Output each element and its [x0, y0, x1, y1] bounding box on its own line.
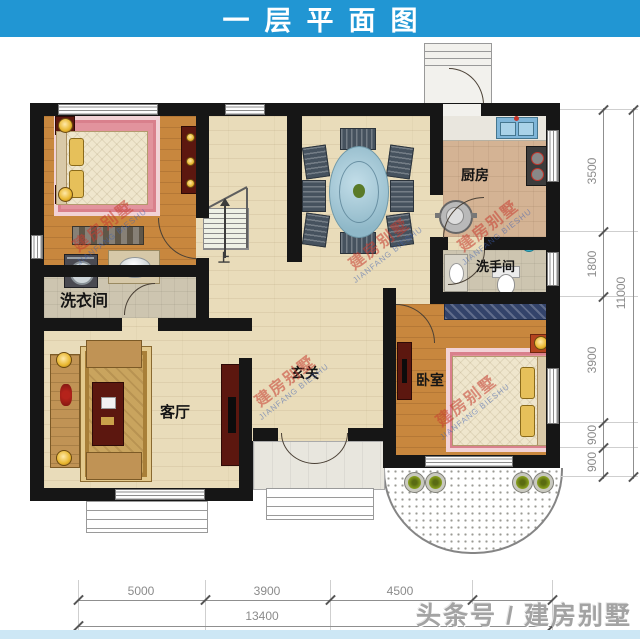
wall-laundry-living — [158, 318, 252, 331]
dim-right-3500: 3500 — [585, 149, 599, 193]
window — [547, 252, 559, 286]
wall-foyer-bedroom — [383, 288, 396, 455]
label-bedroom: 卧室 — [416, 370, 444, 390]
armchair — [86, 340, 142, 368]
label-kitchen: 厨房 — [461, 165, 489, 185]
dim-right-1800: 1800 — [585, 242, 599, 286]
stair-edge — [246, 188, 248, 248]
title-banner: 一层平面图 — [0, 0, 640, 37]
back-door-opening — [443, 104, 481, 116]
lamp — [56, 450, 72, 466]
window — [58, 104, 158, 115]
wall-kitchen-left — [430, 116, 443, 195]
label-bathroom: 洗手间 — [476, 256, 515, 275]
back-door-arc — [449, 68, 484, 105]
wall-bedroom-hall — [196, 258, 209, 320]
armchair — [86, 452, 142, 480]
dim-bottom-3900: 3900 — [237, 584, 297, 598]
page-title: 一层平面图 — [208, 0, 433, 38]
window — [115, 489, 205, 500]
dim-bottom-5000: 5000 — [111, 584, 171, 598]
plant-pot — [425, 472, 446, 493]
dimension-line-right-total — [633, 108, 634, 479]
label-stairs-up: 上 — [218, 249, 230, 266]
wall-stair-dining — [287, 116, 302, 262]
bed-bench — [72, 226, 144, 245]
kitchen-sink — [496, 117, 538, 139]
wall-bedroom-laundry — [44, 265, 196, 277]
window — [225, 104, 265, 115]
bed — [452, 356, 548, 446]
label-laundry: 洗衣间 — [60, 287, 108, 311]
wall-living-foyer — [239, 358, 252, 489]
dim-right-total: 11000 — [614, 271, 628, 315]
dim-bottom-total: 13400 — [232, 609, 292, 623]
plant-pot — [404, 472, 425, 493]
dining-chair — [302, 144, 330, 179]
stair-arrow-head — [220, 198, 230, 206]
dining-chair — [386, 212, 414, 247]
back-porch — [424, 43, 492, 106]
wardrobe — [444, 303, 548, 320]
window — [547, 368, 559, 424]
lamp — [58, 118, 73, 133]
wall-laundry-living — [44, 318, 122, 331]
living-room-steps — [86, 501, 208, 533]
wall-entrance — [253, 428, 278, 441]
label-foyer: 玄关 — [291, 363, 319, 383]
window — [31, 235, 43, 259]
footer-watermark: 头条号 / 建房别墅 — [416, 596, 632, 632]
label-living: 客厅 — [160, 401, 190, 422]
dim-right-900b: 900 — [585, 440, 599, 484]
stove — [526, 146, 548, 186]
lamp — [56, 352, 72, 368]
entrance-steps — [266, 488, 374, 520]
dining-chair — [390, 180, 414, 212]
window — [547, 130, 559, 182]
plant-pot — [533, 472, 554, 493]
bottom-blue-strip — [0, 630, 640, 639]
plant-pot — [512, 472, 533, 493]
floor-plan-page: 一层平面图 — [0, 0, 640, 639]
wall-left — [30, 103, 44, 501]
wall-entrance — [348, 428, 383, 441]
dining-chair — [302, 212, 330, 247]
window — [425, 456, 513, 467]
dim-right-3900: 3900 — [585, 338, 599, 382]
dining-chair — [302, 180, 326, 212]
dining-table — [329, 146, 389, 238]
wall-bath-bottom — [430, 292, 560, 304]
wall-kitchen-bath — [484, 237, 560, 250]
coffee-table — [92, 382, 124, 446]
wall-bedroom-hall — [196, 116, 209, 218]
staircase — [203, 208, 249, 250]
tv-cabinet — [397, 342, 412, 400]
flower-decor — [60, 384, 72, 406]
dining-chair — [386, 144, 414, 179]
lamp — [58, 187, 73, 202]
